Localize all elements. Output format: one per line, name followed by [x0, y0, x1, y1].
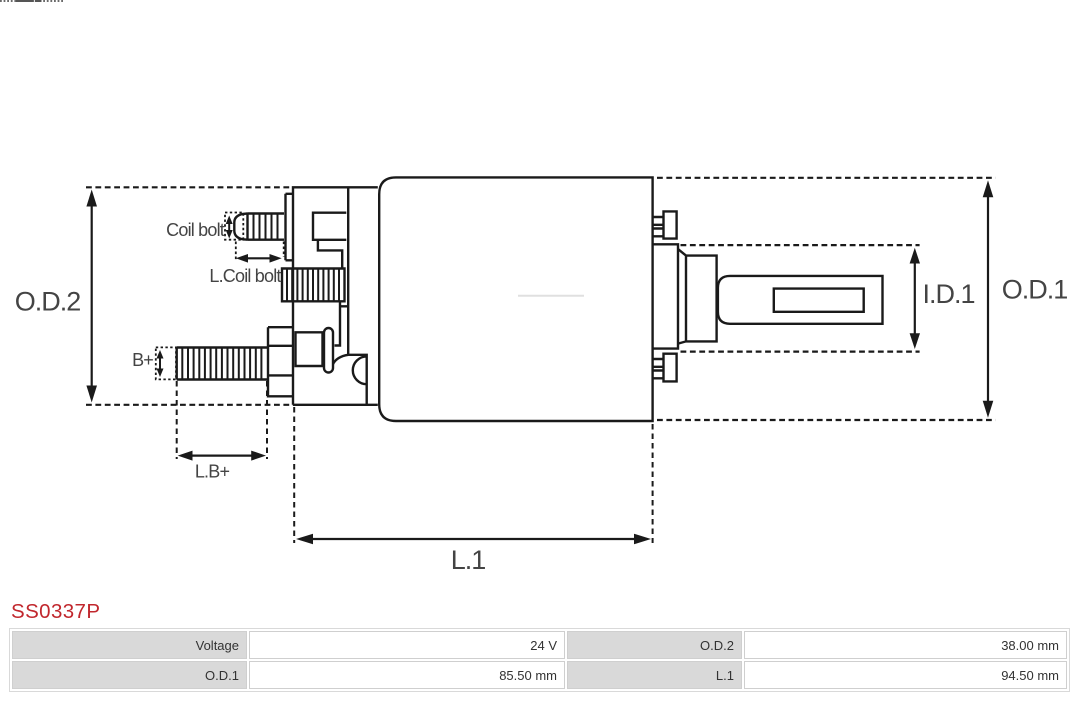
- svg-text:O.D.2: O.D.2: [15, 287, 81, 317]
- svg-text:Coil bolt: Coil bolt: [166, 220, 225, 240]
- svg-text:L.1: L.1: [451, 545, 486, 575]
- svg-text:O.D.1: O.D.1: [1002, 275, 1068, 305]
- svg-text:I.D.1: I.D.1: [922, 279, 974, 309]
- svg-text:L.Coil bolt: L.Coil bolt: [209, 266, 281, 286]
- svg-text:L.B+: L.B+: [195, 462, 230, 482]
- svg-text:B+: B+: [132, 350, 153, 370]
